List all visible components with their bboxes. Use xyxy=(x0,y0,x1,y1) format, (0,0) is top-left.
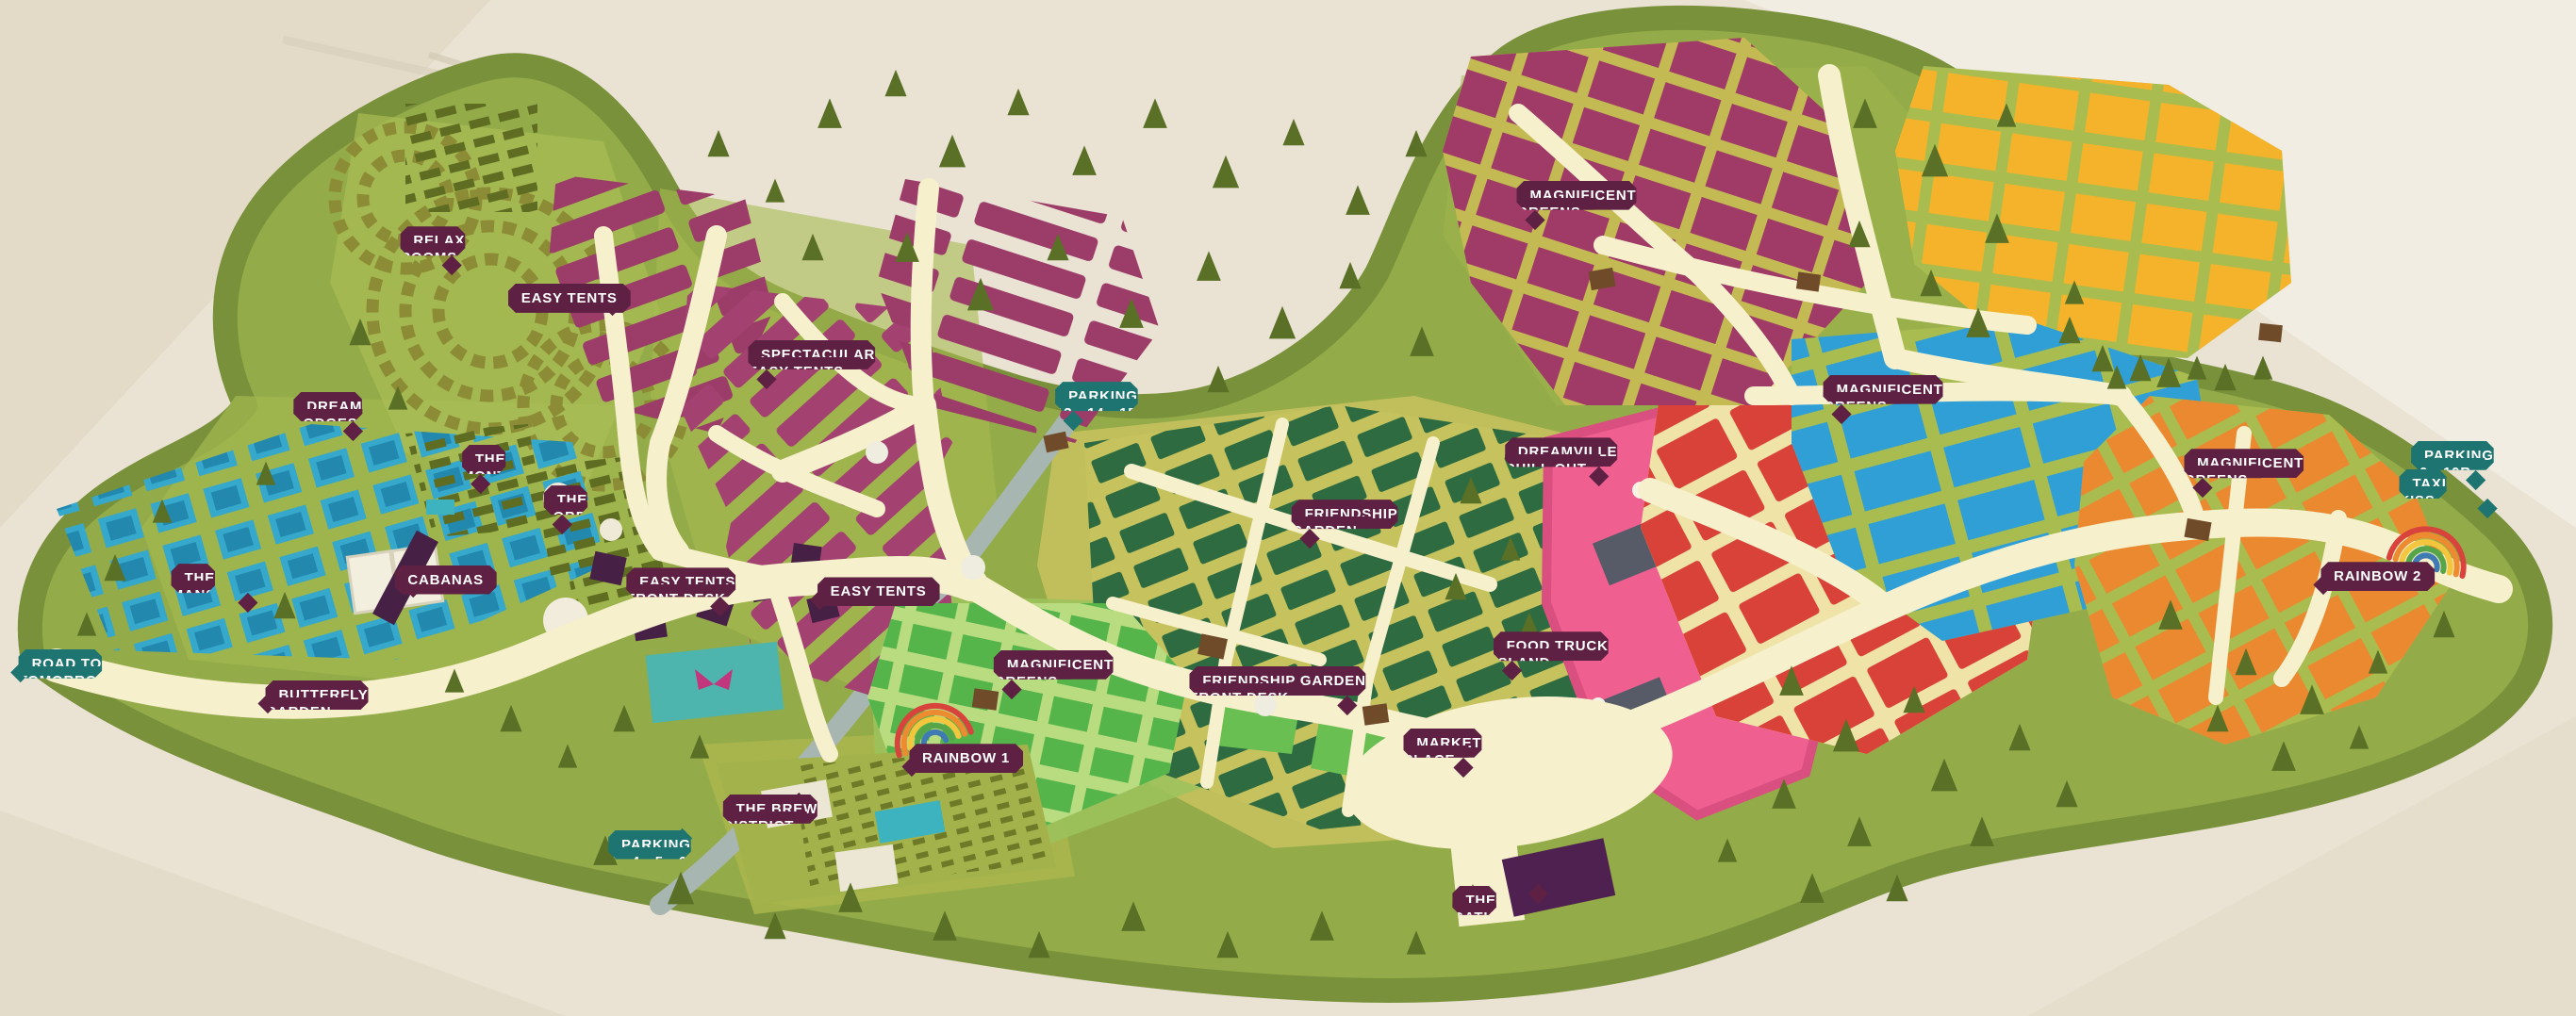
map-label-text: ROAD TO TOMORROWLAND xyxy=(19,649,167,696)
map-label-parking-13-14-15: PARKING 13 - 14 - 15 xyxy=(1055,388,1149,422)
map-label-friendship-garden: FRIENDSHIP GARDEN xyxy=(1292,506,1398,540)
map-label-dream-lodges: DREAM LODGES xyxy=(293,399,371,433)
map-label-friendship-garden-front-desk: FRIENDSHIP GARDEN FRONT DESK xyxy=(1189,673,1365,707)
map-label-the-mansions: THE MANSIONS xyxy=(172,570,267,604)
map-label-the-montagoe: THE MONTAGOE xyxy=(462,451,564,485)
map-label-taxi-kiss-ride: TAXI KISS & RIDE xyxy=(2399,476,2505,510)
map-label-dreamville-chill-out: DREAMVILLE CHILL OUT xyxy=(1505,444,1618,478)
map-label-easy-tents-2: EASY TENTS xyxy=(817,583,940,600)
map-label-road-to-tomorrowland: ROAD TO TOMORROWLAND xyxy=(19,656,167,690)
map-label-magnificent-greens-4: MAGNIFICENT GREENS xyxy=(2184,455,2304,489)
map-label-text: THE BREW DISTRICT xyxy=(723,795,817,841)
map-label-spectacular-easy-tents: SPECTACULAR EASY TENTS xyxy=(748,347,875,381)
map-label-food-truck-island: FOOD TRUCK ISLAND xyxy=(1494,638,1609,672)
dreamville-map-canvas[interactable]: RELAX ROOMSEASY TENTSDREAM LODGESSPECTAC… xyxy=(0,0,2576,1016)
map-label-cabanas: CABANAS xyxy=(394,572,497,589)
map-label-text: EASY TENTS xyxy=(508,284,631,313)
map-label-the-gathering: THE GATHERING xyxy=(1452,893,1556,926)
map-label-magnificent-greens-2: MAGNIFICENT GREENS xyxy=(1516,188,1636,221)
map-label-relax-rooms: RELAX ROOMS xyxy=(400,233,471,267)
map-label-text: EASY TENTS xyxy=(817,577,940,606)
map-label-butterfly-garden: BUTTERFLY GARDEN xyxy=(266,687,369,721)
map-label-rainbow-2: RAINBOW 2 xyxy=(2320,568,2435,585)
map-label-text: RAINBOW 1 xyxy=(909,744,1023,773)
map-label-easy-tents-front-desk: EASY TENTS FRONT DESK xyxy=(626,574,739,608)
map-label-text: PARKING 3 - 4 - 5 - 6 xyxy=(608,830,701,877)
map-label-easy-tents-1: EASY TENTS xyxy=(508,290,631,307)
map-illustration xyxy=(0,0,2576,1016)
map-label-magnificent-greens-3: MAGNIFICENT GREENS xyxy=(1824,382,1943,416)
map-label-text: RAINBOW 2 xyxy=(2320,562,2435,591)
map-label-text: CABANAS xyxy=(394,565,497,595)
map-label-the-lobby: THE LOBBY xyxy=(544,492,611,526)
map-label-parking-3-4-5-6: PARKING 3 - 4 - 5 - 6 xyxy=(608,837,701,871)
map-label-the-brew-district: THE BREW DISTRICT xyxy=(723,801,817,835)
map-label-market-place: MARKET PLACE xyxy=(1403,735,1481,769)
zone-butterfly-garden xyxy=(646,642,784,723)
map-label-magnificent-greens-1: MAGNIFICENT GREENS xyxy=(994,657,1114,691)
map-label-text: BUTTERFLY GARDEN xyxy=(266,680,369,727)
map-label-rainbow-1: RAINBOW 1 xyxy=(909,750,1023,767)
